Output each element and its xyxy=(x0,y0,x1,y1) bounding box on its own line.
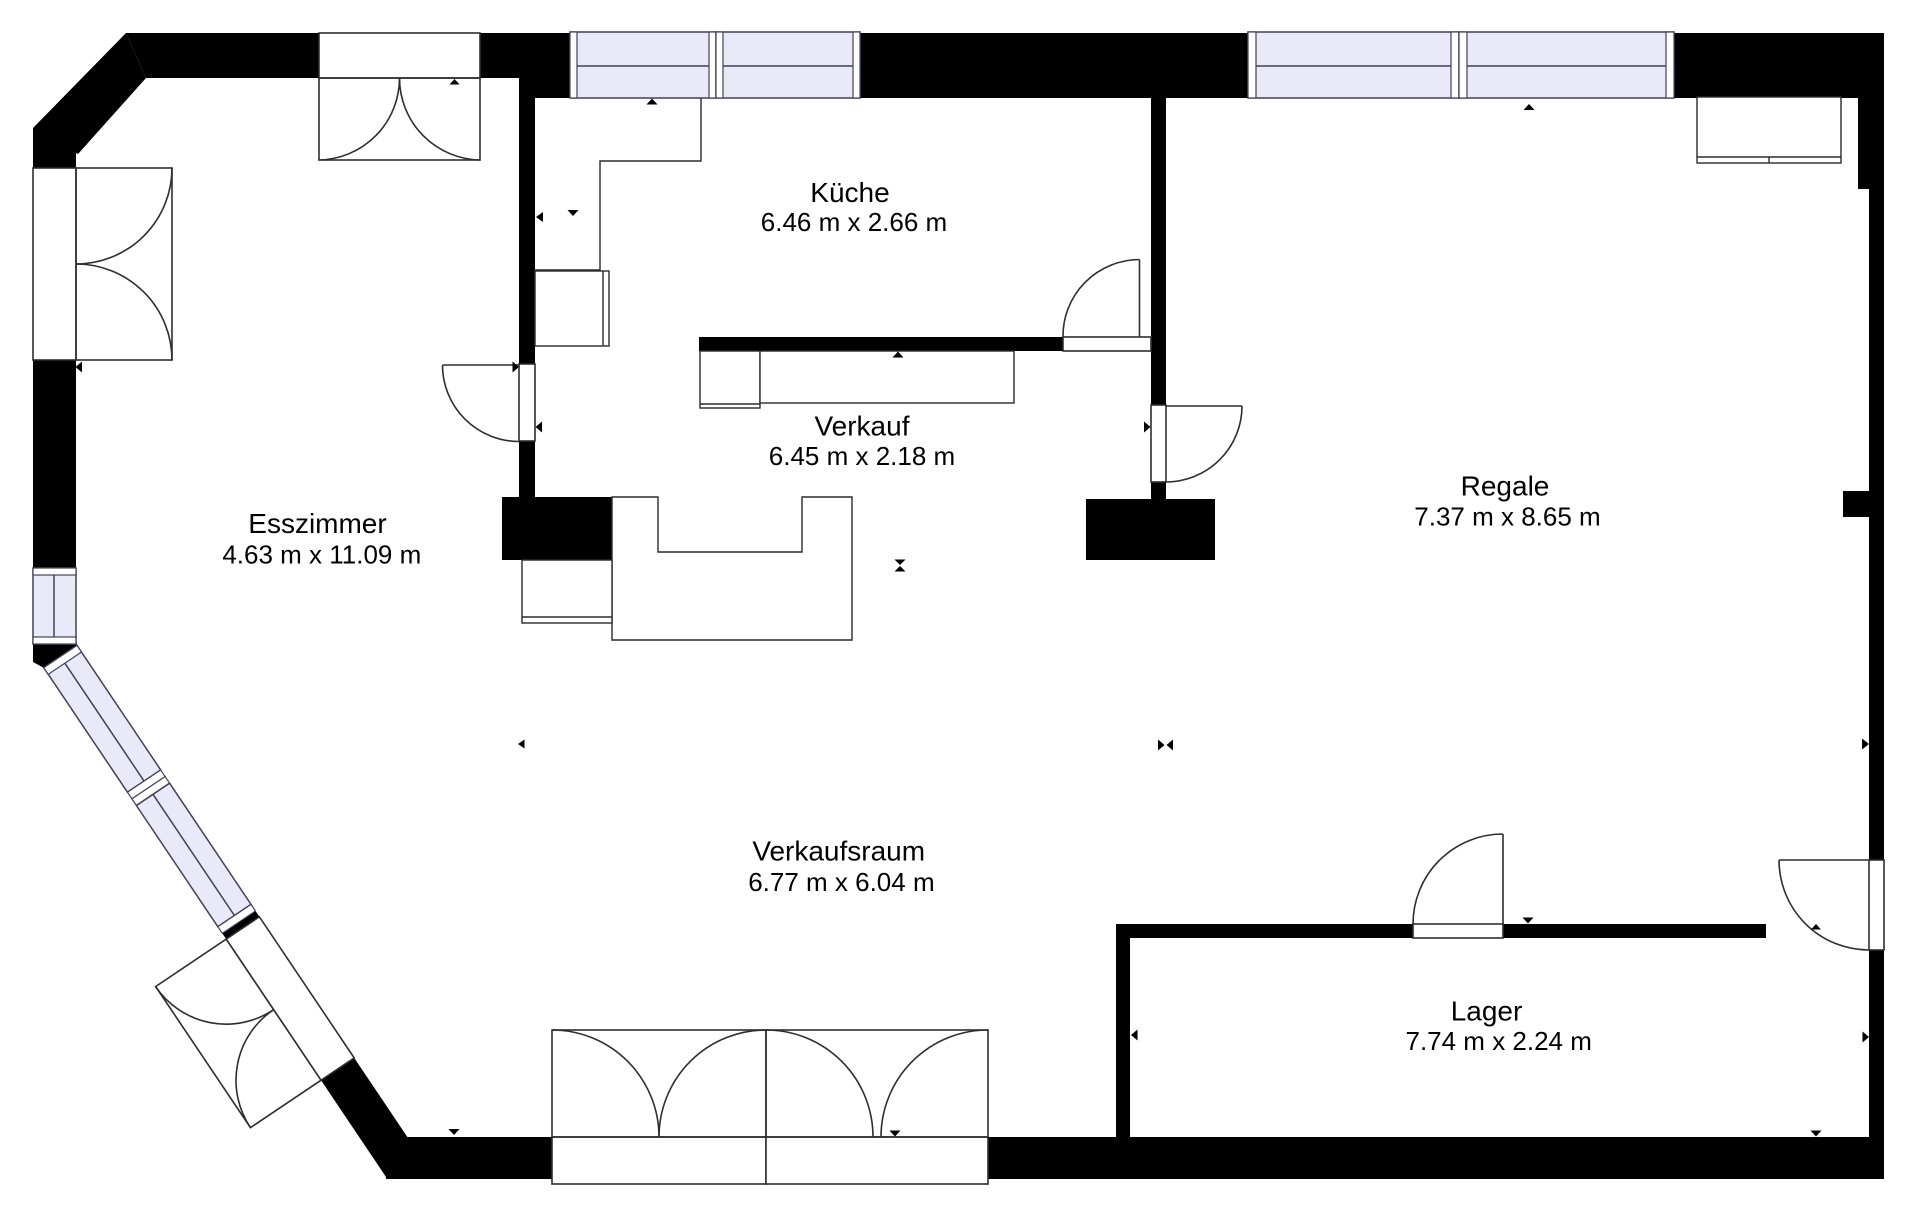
svg-text:6.77 m x 6.04 m: 6.77 m x 6.04 m xyxy=(748,867,934,897)
svg-text:6.46 m x 2.66 m: 6.46 m x 2.66 m xyxy=(761,207,947,237)
svg-text:Küche: Küche xyxy=(810,177,889,208)
svg-text:Esszimmer: Esszimmer xyxy=(248,508,386,539)
svg-text:7.74 m x 2.24 m: 7.74 m x 2.24 m xyxy=(1405,1026,1591,1056)
svg-text:Verkaufsraum: Verkaufsraum xyxy=(752,836,925,867)
svg-text:Verkauf: Verkauf xyxy=(815,411,910,442)
svg-text:7.37 m x 8.65 m: 7.37 m x 8.65 m xyxy=(1414,502,1600,532)
svg-text:Lager: Lager xyxy=(1451,996,1523,1027)
svg-text:6.45 m x 2.18 m: 6.45 m x 2.18 m xyxy=(769,441,955,471)
svg-text:4.63 m x 11.09 m: 4.63 m x 11.09 m xyxy=(222,540,421,570)
svg-text:Regale: Regale xyxy=(1461,471,1550,502)
